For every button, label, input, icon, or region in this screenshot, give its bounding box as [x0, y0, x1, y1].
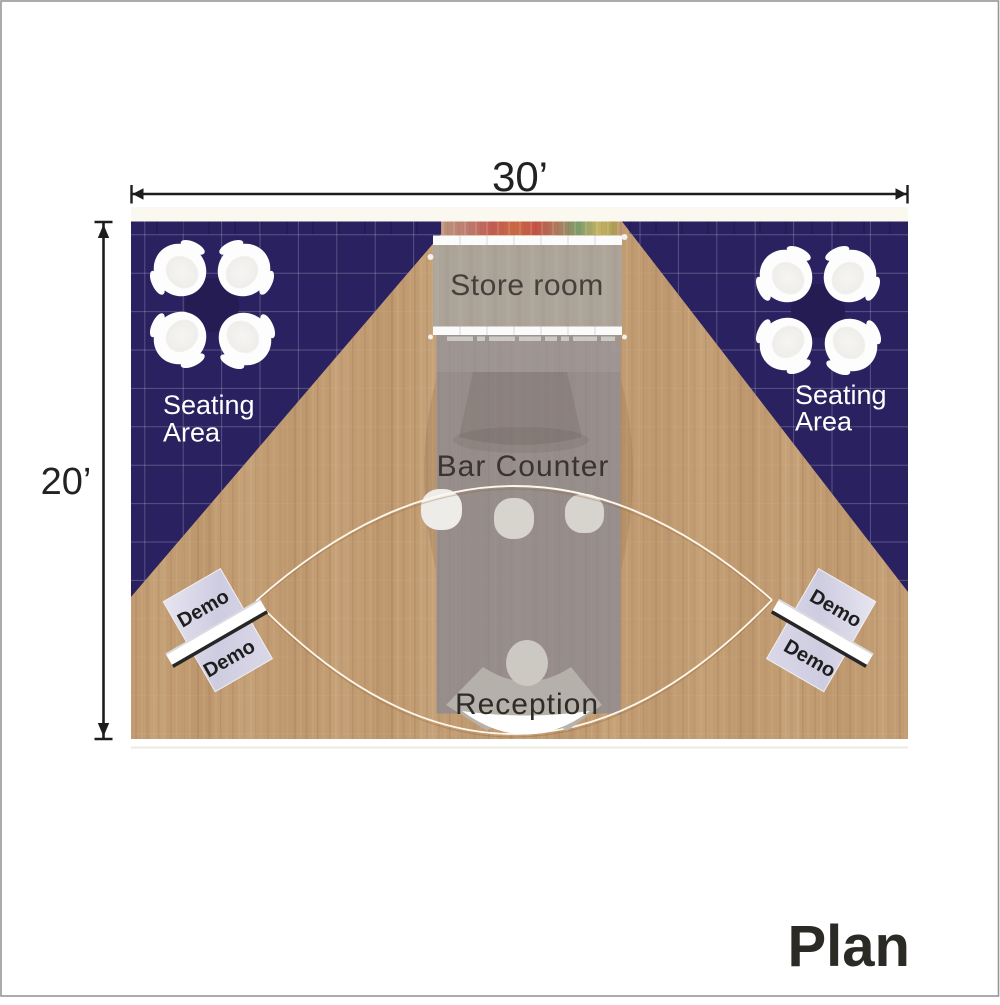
svg-text:Reception: Reception — [455, 688, 599, 721]
svg-text:Seating: Seating — [163, 390, 255, 420]
svg-text:Seating: Seating — [795, 380, 887, 410]
svg-text:Plan: Plan — [788, 914, 911, 979]
svg-text:Store room: Store room — [450, 269, 603, 302]
svg-text:Area: Area — [795, 407, 853, 437]
svg-text:Bar Counter: Bar Counter — [437, 450, 610, 483]
svg-text:30’: 30’ — [492, 153, 548, 200]
svg-text:20’: 20’ — [41, 461, 92, 503]
svg-text:Area: Area — [163, 418, 221, 448]
